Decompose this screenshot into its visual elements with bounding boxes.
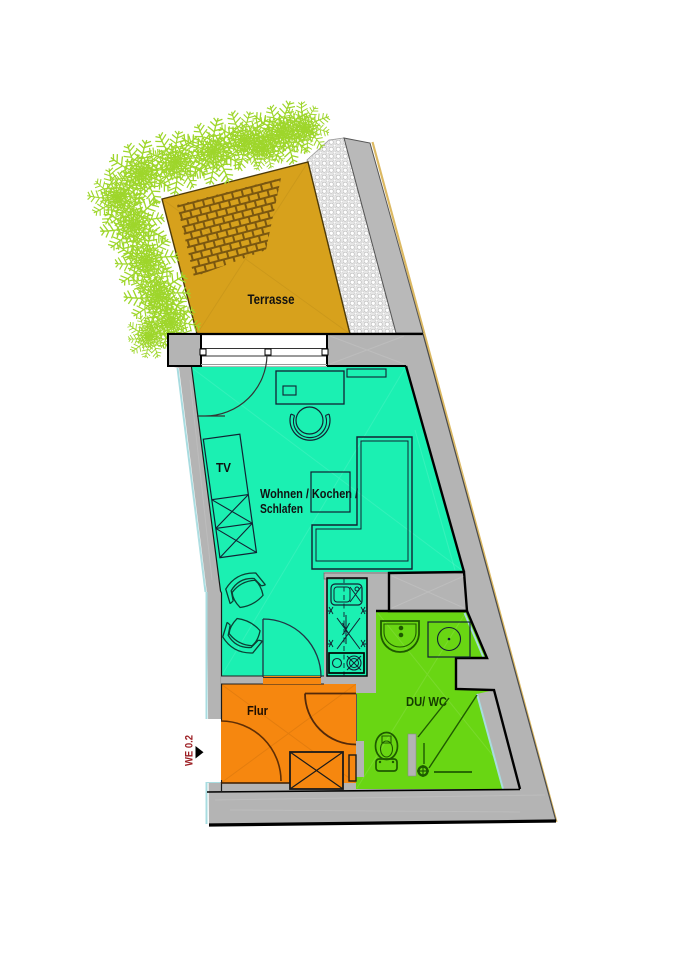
svg-text:DU/ WC: DU/ WC [406,695,447,709]
svg-text:Schlafen: Schlafen [260,502,303,516]
svg-text:Flur: Flur [247,704,268,718]
svg-text:TV: TV [216,460,231,475]
svg-text:Wohnen / Kochen /: Wohnen / Kochen / [260,487,358,501]
svg-text:WE 0.2: WE 0.2 [184,735,196,766]
svg-text:Terrasse: Terrasse [248,291,295,307]
